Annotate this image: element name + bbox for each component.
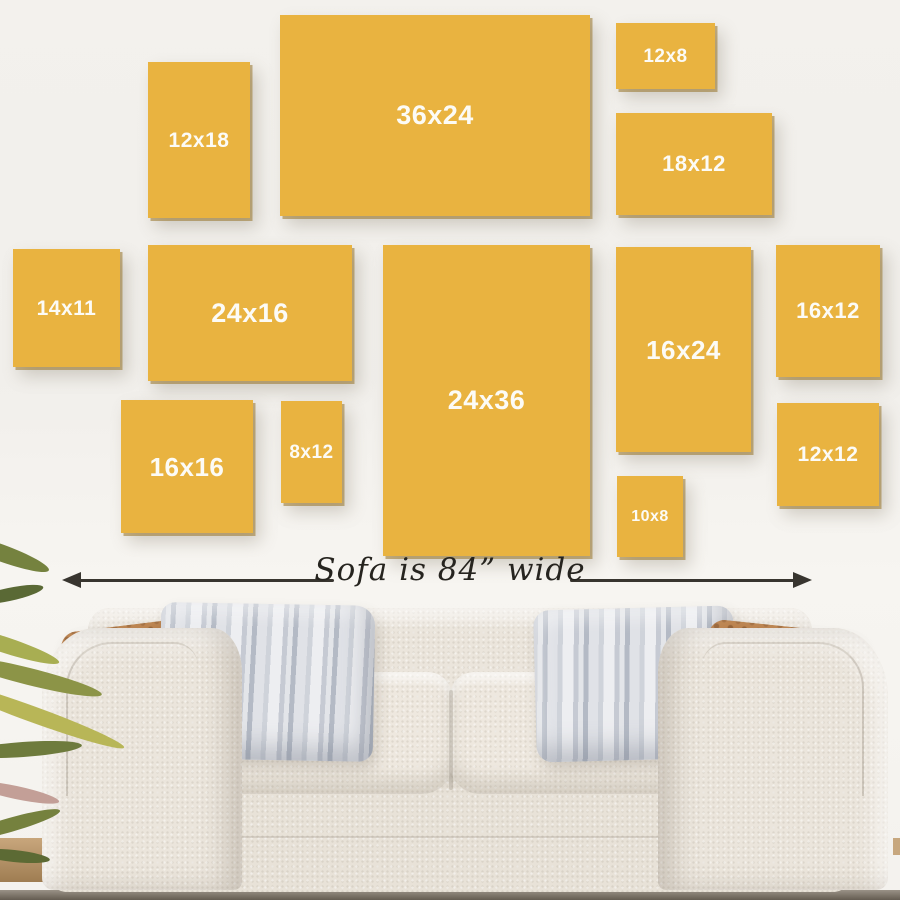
sofa-arm-right [658,628,888,890]
arrow-right-icon [793,572,812,588]
wall-art-size-guide: 12x18 36x24 12x8 18x12 14x11 24x16 24x36… [0,0,900,900]
sofa [0,0,900,900]
seat-cushion-gap [449,690,453,790]
measure-line-left [68,579,334,582]
measure-label: Sofa is 84” wide [300,552,600,588]
measure-line-right [570,579,808,582]
arrow-left-icon [62,572,81,588]
sofa-arm-left [42,628,242,890]
